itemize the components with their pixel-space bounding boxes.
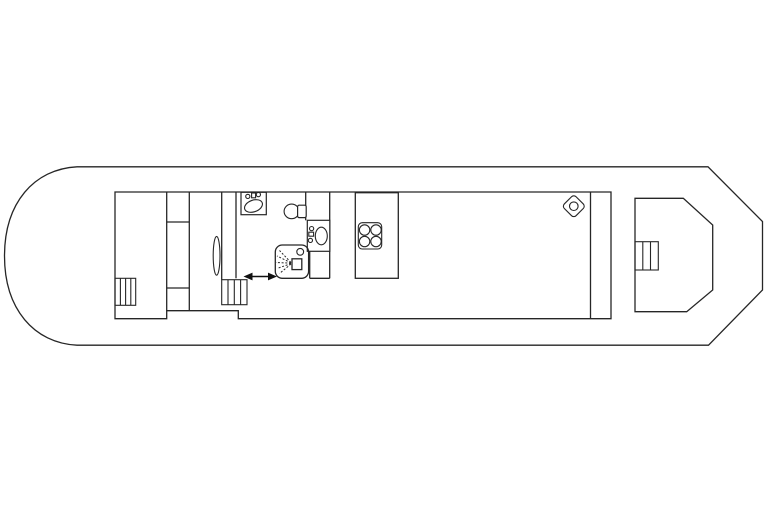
aft-deck-outline xyxy=(635,198,713,311)
floor-plan-canvas xyxy=(0,0,768,512)
floor-plan-page xyxy=(0,0,768,512)
stairs-forward-icon xyxy=(115,278,136,305)
toilet-icon xyxy=(284,204,306,219)
washbasin-forward-icon xyxy=(241,192,266,214)
stove-icon xyxy=(358,223,381,249)
cabin-walls xyxy=(115,192,611,319)
stairs-aft-icon xyxy=(635,242,658,270)
washbasin-aft-icon xyxy=(307,220,330,251)
shower-icon xyxy=(275,245,308,278)
aft-deck-structure xyxy=(635,198,713,311)
oval-table-icon xyxy=(213,236,220,275)
stairs-midship-icon xyxy=(222,280,247,305)
diamond-hatch-icon xyxy=(562,194,585,217)
double-arrow-icon xyxy=(244,273,278,281)
